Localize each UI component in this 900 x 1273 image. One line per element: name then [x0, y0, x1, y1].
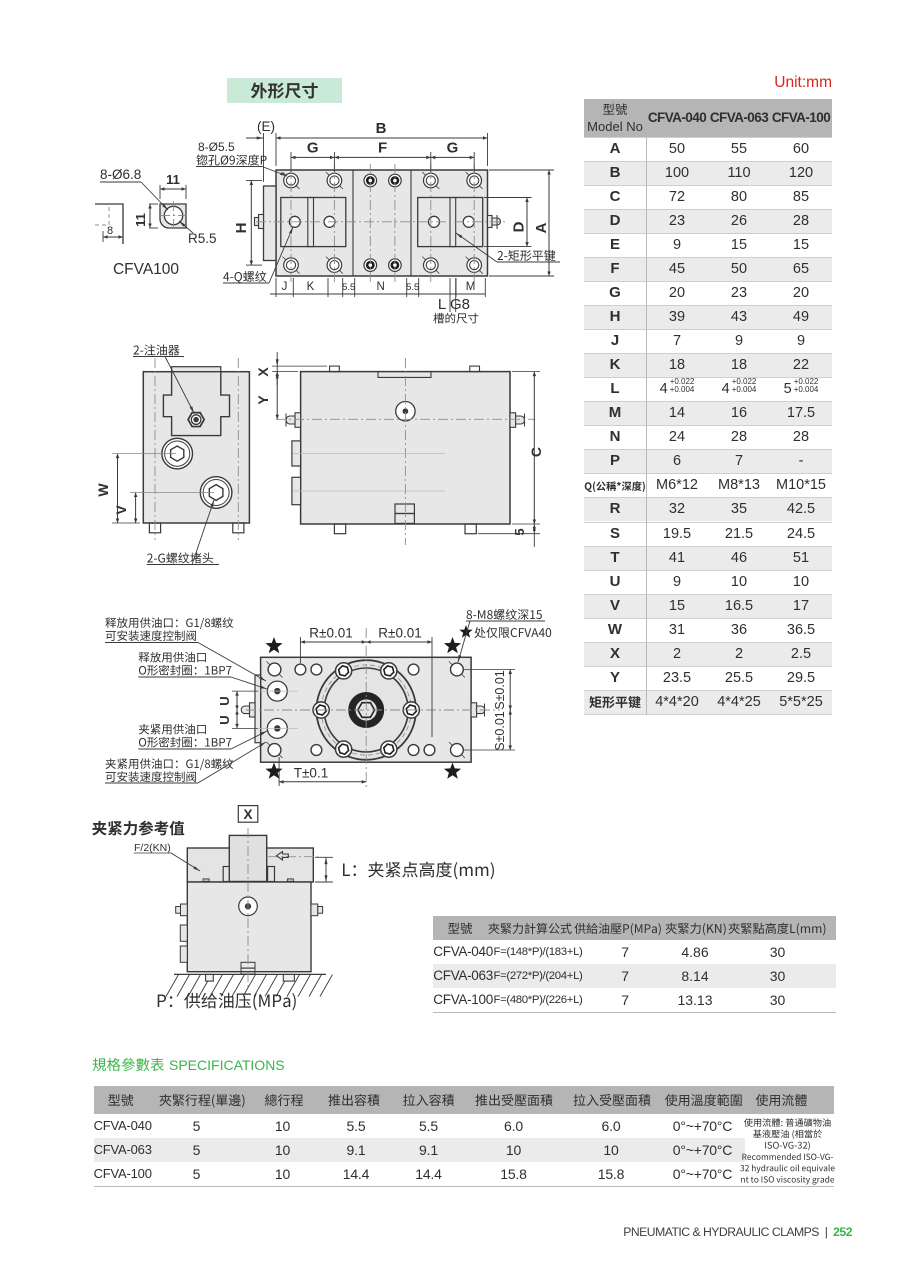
svg-text:M: M: [466, 281, 476, 293]
svg-text:T±0.1: T±0.1: [294, 766, 328, 781]
svg-text:C: C: [528, 447, 544, 457]
svg-text:G: G: [447, 140, 459, 157]
svg-text:5.5: 5.5: [342, 282, 355, 293]
svg-text:X: X: [243, 807, 252, 822]
svg-text:11: 11: [133, 213, 148, 227]
svg-text:G8: G8: [450, 296, 470, 313]
svg-text:R±0.01: R±0.01: [309, 626, 352, 641]
svg-text:A: A: [533, 222, 550, 233]
svg-text:D: D: [511, 221, 528, 232]
svg-text:G: G: [307, 140, 319, 157]
svg-text:S±0.01: S±0.01: [493, 711, 507, 751]
svg-text:F/2(KN): F/2(KN): [134, 842, 171, 854]
svg-text:F: F: [378, 140, 387, 157]
svg-text:S±0.01: S±0.01: [493, 670, 507, 710]
svg-text:SPECIFICATIONS: SPECIFICATIONS: [169, 1057, 285, 1073]
svg-text:K: K: [307, 281, 315, 293]
svg-text:11: 11: [166, 172, 180, 187]
svg-text:Y: Y: [255, 395, 271, 405]
svg-text:8: 8: [107, 225, 113, 237]
svg-text:5.5: 5.5: [406, 282, 419, 293]
svg-text:CFVA100: CFVA100: [113, 261, 179, 278]
svg-text:B: B: [376, 120, 387, 137]
svg-text:L: L: [438, 296, 446, 313]
svg-text:8-Ø6.8: 8-Ø6.8: [100, 167, 141, 182]
svg-text:V: V: [113, 505, 129, 515]
svg-text:U: U: [217, 696, 232, 705]
svg-text:R5.5: R5.5: [188, 231, 217, 246]
svg-text:H: H: [233, 223, 250, 234]
svg-text:5: 5: [512, 528, 527, 535]
svg-text:J: J: [282, 281, 288, 293]
svg-text:W: W: [95, 483, 111, 497]
svg-text:(E): (E): [257, 119, 275, 134]
svg-text:N: N: [377, 281, 385, 293]
svg-text:R±0.01: R±0.01: [378, 626, 421, 641]
svg-text:X: X: [255, 367, 271, 377]
svg-text:U: U: [217, 715, 232, 724]
svg-text:8-Ø5.5: 8-Ø5.5: [198, 140, 235, 154]
